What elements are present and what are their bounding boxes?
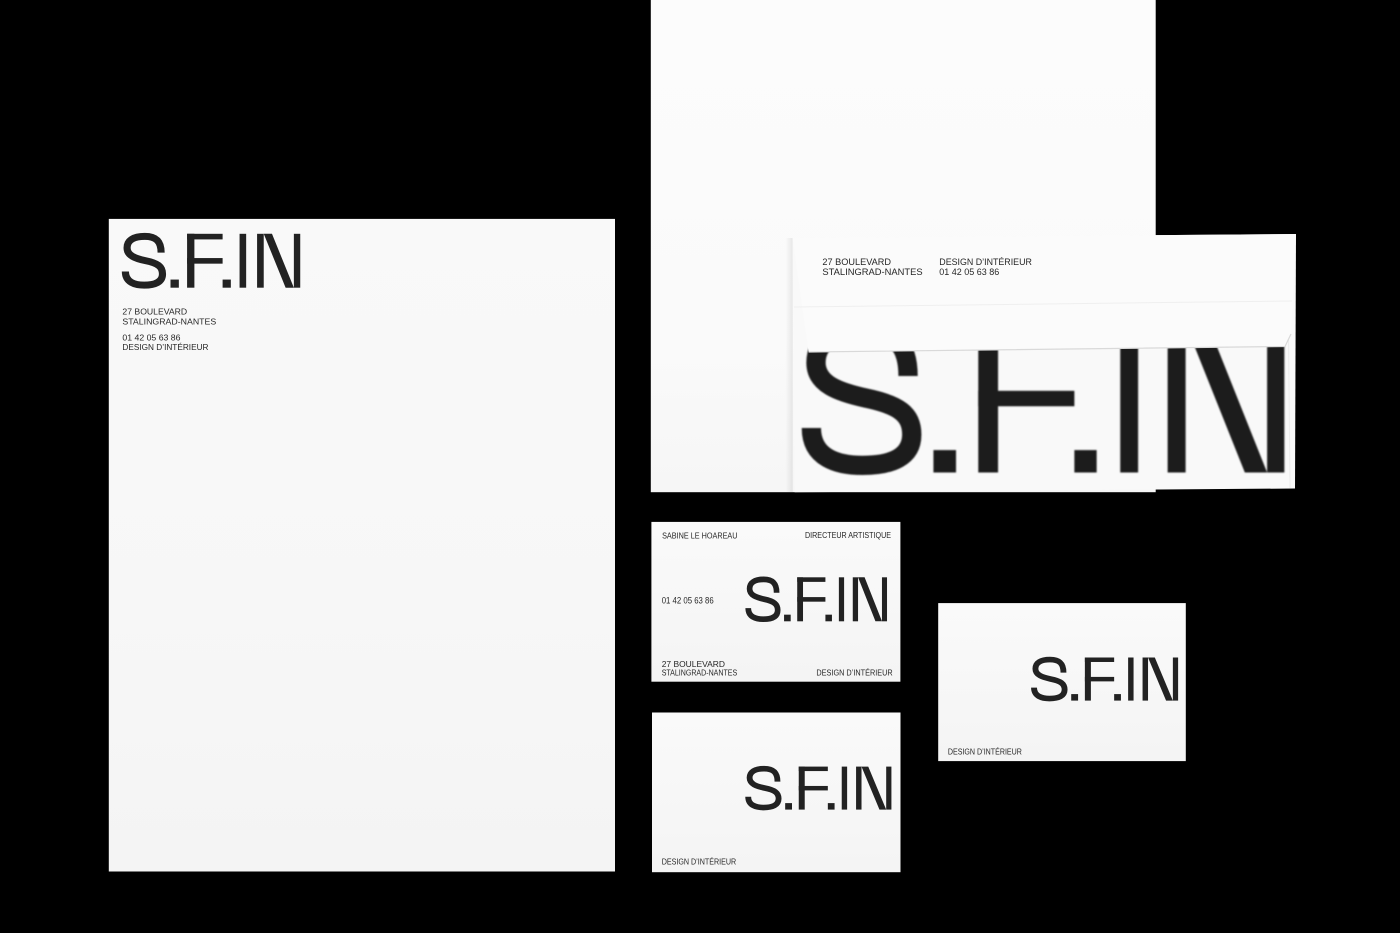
- svg-text:DESIGN D’INTÉRIEUR: DESIGN D’INTÉRIEUR: [662, 856, 737, 866]
- svg-text:DESIGN D’INTÉRIEUR: DESIGN D’INTÉRIEUR: [948, 747, 1022, 756]
- svg-text:DIRECTEUR ARTISTIQUE: DIRECTEUR ARTISTIQUE: [805, 530, 891, 540]
- svg-text:01 42 05 63 86: 01 42 05 63 86: [939, 267, 999, 277]
- svg-text:STALINGRAD-NANTES: STALINGRAD-NANTES: [822, 267, 922, 277]
- svg-text:STALINGRAD-NANTES: STALINGRAD-NANTES: [122, 317, 216, 327]
- svg-text:DESIGN D’INTÉRIEUR: DESIGN D’INTÉRIEUR: [816, 667, 892, 677]
- svg-text:01 42 05 63 86: 01 42 05 63 86: [122, 333, 180, 343]
- svg-text:DESIGN D’INTÉRIEUR: DESIGN D’INTÉRIEUR: [939, 257, 1032, 267]
- svg-text:DESIGN D’INTÉRIEUR: DESIGN D’INTÉRIEUR: [122, 342, 208, 352]
- svg-text:STALINGRAD-NANTES: STALINGRAD-NANTES: [662, 667, 738, 677]
- svg-text:27 BOULEVARD: 27 BOULEVARD: [122, 307, 187, 317]
- svg-text:27 BOULEVARD: 27 BOULEVARD: [822, 257, 891, 267]
- svg-text:01 42 05 63 86: 01 42 05 63 86: [662, 595, 714, 605]
- svg-text:SABINE LE HOAREAU: SABINE LE HOAREAU: [662, 531, 737, 541]
